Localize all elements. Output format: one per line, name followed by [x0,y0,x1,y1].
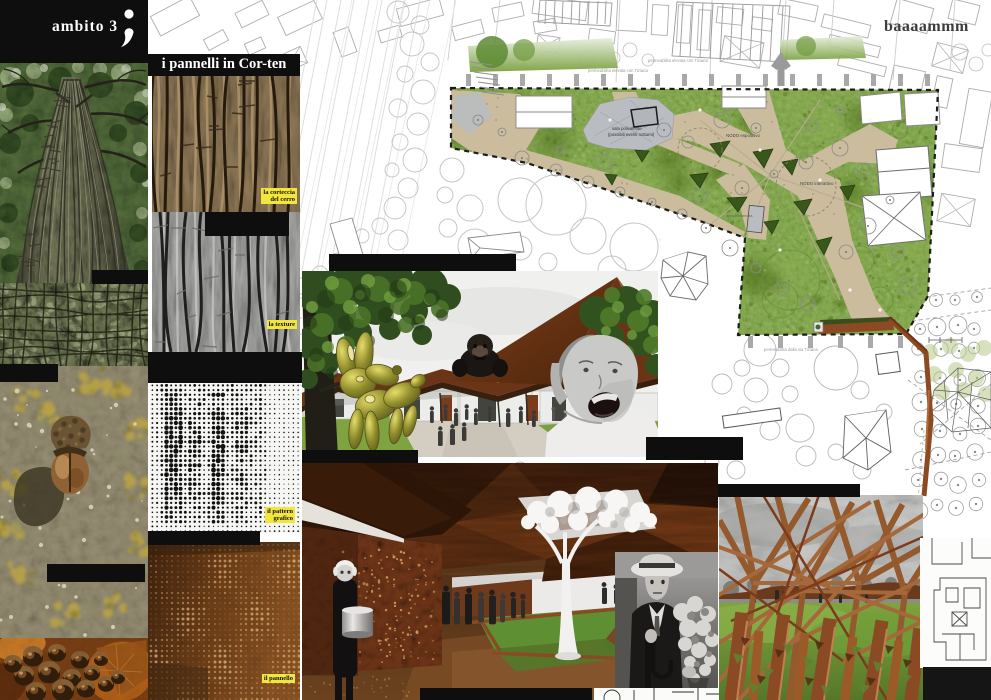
svg-text:sala polivalente: sala polivalente [612,126,642,131]
svg-text:NODO interattivo: NODO interattivo [800,181,834,186]
svg-text:permeabilita dalla via Tiziana: permeabilita dalla via Tiziana [764,347,818,352]
svg-text:permeabilita elevata con Tizia: permeabilita elevata con Tiziana [648,58,708,63]
svg-text:NODO espositivo: NODO espositivo [726,133,760,138]
svg-text:area fontanella: area fontanella [726,213,753,218]
svg-text:(possibili eventi notturni): (possibili eventi notturni) [608,132,655,137]
svg-text:permeabilita elevata con Tizia: permeabilita elevata con Tiziana [588,68,648,73]
